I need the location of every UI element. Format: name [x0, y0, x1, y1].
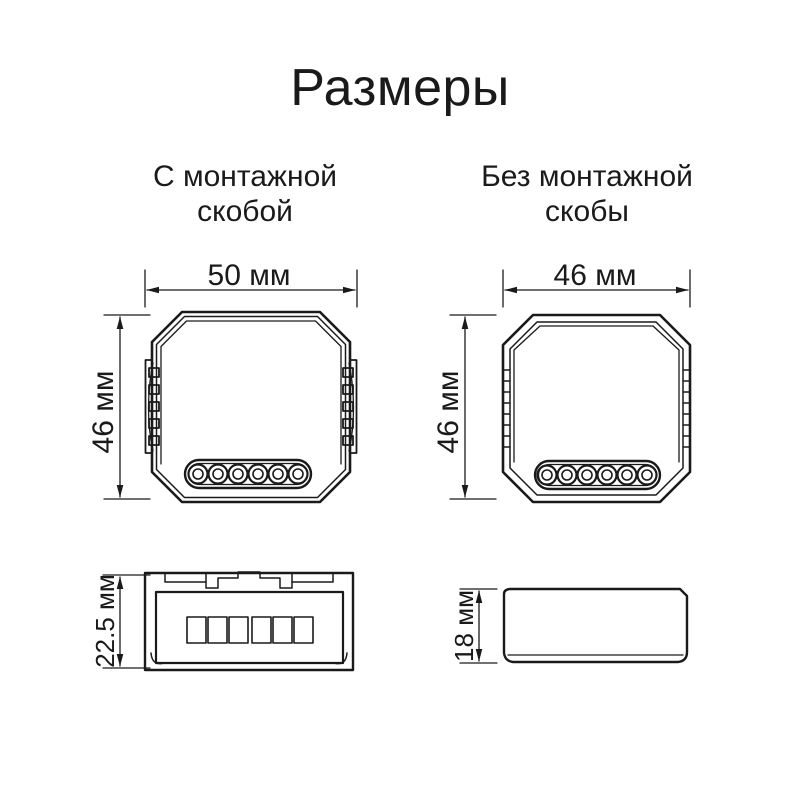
top-view-without-bracket: [503, 315, 690, 502]
terminal-hole-inner: [642, 470, 652, 480]
side-height-label-with-bracket: 22.5 мм: [90, 574, 120, 668]
bracket-center-castellation: [206, 572, 292, 588]
bracket-left-tab: [165, 574, 206, 582]
side-view-with-bracket: [145, 572, 353, 670]
terminal-hole-inner: [273, 469, 283, 479]
terminal-hole-inner: [602, 470, 612, 480]
device-profile-outline: [504, 589, 687, 662]
terminal-hole-inner: [582, 470, 592, 480]
side-view-without-bracket: [504, 589, 687, 662]
width-label-with-bracket: 50 мм: [208, 259, 291, 292]
terminal-slots: [187, 617, 313, 643]
terminal-hole-outer: [229, 465, 248, 484]
terminal-hole-inner: [622, 470, 632, 480]
height-label-without-bracket: 46 мм: [432, 371, 465, 454]
terminal-hole-outer: [269, 465, 288, 484]
bracket-profile-outline: [145, 573, 353, 670]
terminal-hole-outer: [289, 465, 308, 484]
terminal-hole-outer: [189, 465, 208, 484]
terminal-holes: [538, 466, 657, 485]
terminal-hole-outer: [618, 466, 637, 485]
device-body-outline: [152, 312, 350, 502]
bracket-overlay-line: [161, 321, 341, 464]
width-label-without-bracket: 46 мм: [554, 259, 637, 292]
dimension-diagram: 50 мм 46 мм: [0, 0, 800, 800]
terminal-holes: [189, 465, 308, 484]
top-view-with-bracket: [146, 312, 357, 502]
side-height-label-without-bracket: 18 мм: [449, 590, 479, 662]
terminal-hole-inner: [193, 469, 203, 479]
terminal-hole-inner: [233, 469, 243, 479]
terminal-hole-inner: [542, 470, 552, 480]
terminal-hole-outer: [638, 466, 657, 485]
device-inner-line-2: [514, 326, 679, 462]
dimensions-page: Размеры С монтажной скобой Без монтажной…: [0, 0, 800, 800]
terminal-hole-inner: [293, 469, 303, 479]
device-profile-body: [156, 592, 343, 663]
terminal-hole-inner: [213, 469, 223, 479]
terminal-hole-outer: [578, 466, 597, 485]
height-label-with-bracket: 46 мм: [87, 371, 120, 454]
bracket-right-tab: [292, 574, 333, 582]
terminal-hole-outer: [598, 466, 617, 485]
terminal-hole-outer: [558, 466, 577, 485]
terminal-hole-outer: [249, 465, 268, 484]
terminal-hole-inner: [562, 470, 572, 480]
terminal-hole-inner: [253, 469, 263, 479]
terminal-hole-outer: [538, 466, 557, 485]
terminal-hole-outer: [209, 465, 228, 484]
dims-with-bracket-top-view: [104, 270, 357, 499]
